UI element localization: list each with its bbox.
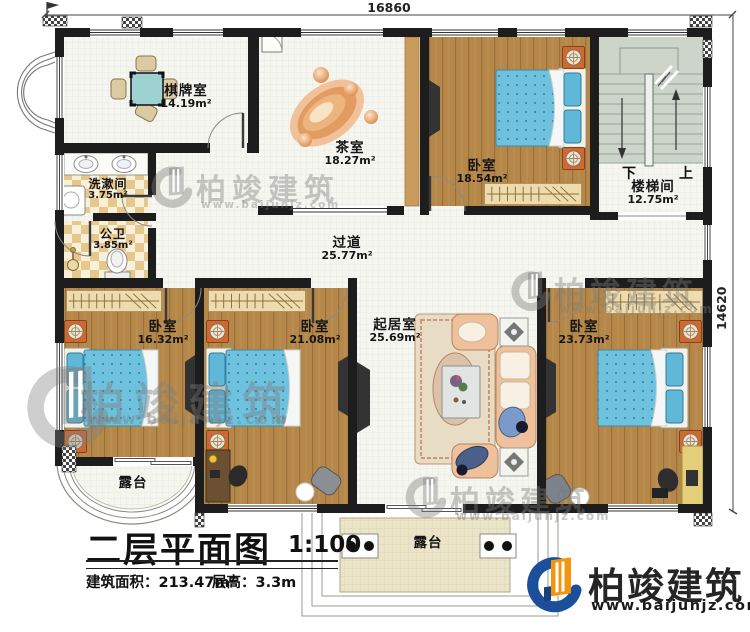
floor-height-text: 层高：3.3m [212, 571, 296, 592]
brand-logo-icon [524, 552, 582, 618]
terrace-center-graphic [302, 512, 558, 616]
brand-logo-block: 柏竣建筑 www.baijunjz.com [524, 550, 750, 622]
plan-scale: 1:100 [288, 532, 361, 558]
stairs-up-label: 上 [679, 163, 693, 183]
title-underline [86, 560, 338, 569]
dimension-right: 14620 [714, 287, 729, 331]
floor-plan-page: 柏竣建筑 www.baijunjz.com 柏竣建筑 www.baijunjz.… [0, 0, 750, 632]
bay-window [17, 52, 55, 133]
brand-url: www.baijunjz.com [591, 598, 750, 614]
dimension-top: 16860 [367, 0, 411, 15]
stairs-down-label: 下 [622, 163, 636, 183]
terrace-left-graphic [57, 462, 207, 524]
